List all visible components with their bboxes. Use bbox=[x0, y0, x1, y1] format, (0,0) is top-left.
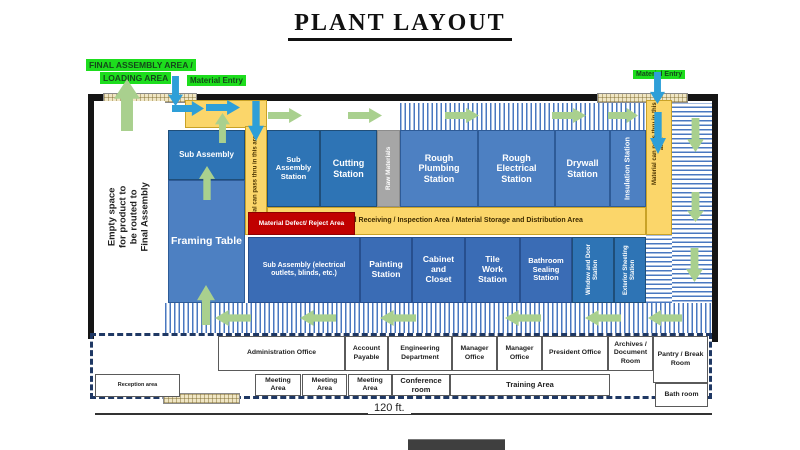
page-title-wrap: PLANT LAYOUT bbox=[0, 10, 800, 41]
office-account-payable: Account Payable bbox=[345, 336, 388, 371]
office-manager-1: Manager Office bbox=[452, 336, 497, 371]
zone-exterior-sheeting: Exterior Sheeting Station bbox=[614, 237, 646, 303]
office-bathroom: Bath room bbox=[655, 383, 708, 407]
flow-arrow-right-1 bbox=[268, 108, 302, 123]
zone-drywall: Drywall Station bbox=[555, 130, 610, 207]
zone-defect-reject: Material Defect/ Reject Area bbox=[248, 212, 355, 235]
office-administration: Administration Office bbox=[218, 336, 345, 371]
empty-space-zone: Empty space for product to be routed to … bbox=[94, 101, 165, 333]
office-meeting-2: Meeting Area bbox=[302, 374, 347, 396]
office-engineering: Engineering Department bbox=[388, 336, 452, 371]
final-assembly-label-line2: LOADING AREA bbox=[100, 68, 171, 86]
office-meeting-3: Meeting Area bbox=[348, 374, 392, 396]
zone-rough-plumbing: Rough Plumbing Station bbox=[400, 130, 478, 207]
empty-space-note: Empty space for product to be routed to … bbox=[108, 182, 152, 253]
office-archives: Archives / Document Room bbox=[608, 336, 653, 371]
office-conference: Conference room bbox=[392, 374, 450, 396]
material-entry-left-text: Material Entry bbox=[187, 75, 246, 86]
office-president: President Office bbox=[542, 336, 608, 371]
zone-insulation: Insulation Station bbox=[610, 130, 646, 207]
zone-tile-work: Tile Work Station bbox=[465, 237, 520, 303]
flow-arrow-right-2 bbox=[348, 108, 382, 123]
conveyor-band-right-inner bbox=[646, 235, 672, 303]
zone-painting-station: Painting Station bbox=[360, 237, 412, 303]
zone-sub-assembly-station: Sub Assembly Station bbox=[267, 130, 320, 207]
zone-sub-assembly-electrical: Sub Assembly (electrical outlets, blinds… bbox=[248, 237, 360, 303]
zone-window-door: Window and Door Station bbox=[572, 237, 614, 303]
office-manager-2: Manager Office bbox=[497, 336, 542, 371]
material-entry-left-label: Material Entry bbox=[187, 70, 246, 88]
zone-raw-materials: Raw Materials bbox=[377, 130, 400, 207]
office-reception: Reception area bbox=[95, 374, 180, 397]
office-pantry: Pantry / Break Room bbox=[653, 336, 708, 383]
zone-bathroom-sealing: Bathroom Sealing Station bbox=[520, 237, 572, 303]
zone-rough-electrical: Rough Electrical Station bbox=[478, 130, 555, 207]
office-meeting-1: Meeting Area bbox=[255, 374, 301, 396]
dimension-label: 120 ft. bbox=[368, 402, 411, 414]
bottom-partial-bar bbox=[408, 439, 505, 450]
final-assembly-text-2: LOADING AREA bbox=[100, 72, 171, 84]
zone-cutting-station: Cutting Station bbox=[320, 130, 377, 207]
plant-layout-diagram: PLANT LAYOUT FINAL ASSEMBLY AREA / LOADI… bbox=[0, 0, 800, 450]
zone-cabinet-closet: Cabinet and Closet bbox=[412, 237, 465, 303]
office-training: Training Area bbox=[450, 374, 610, 396]
wall-right bbox=[712, 94, 718, 342]
page-title: PLANT LAYOUT bbox=[288, 10, 511, 41]
dock-opening-right bbox=[597, 93, 688, 103]
